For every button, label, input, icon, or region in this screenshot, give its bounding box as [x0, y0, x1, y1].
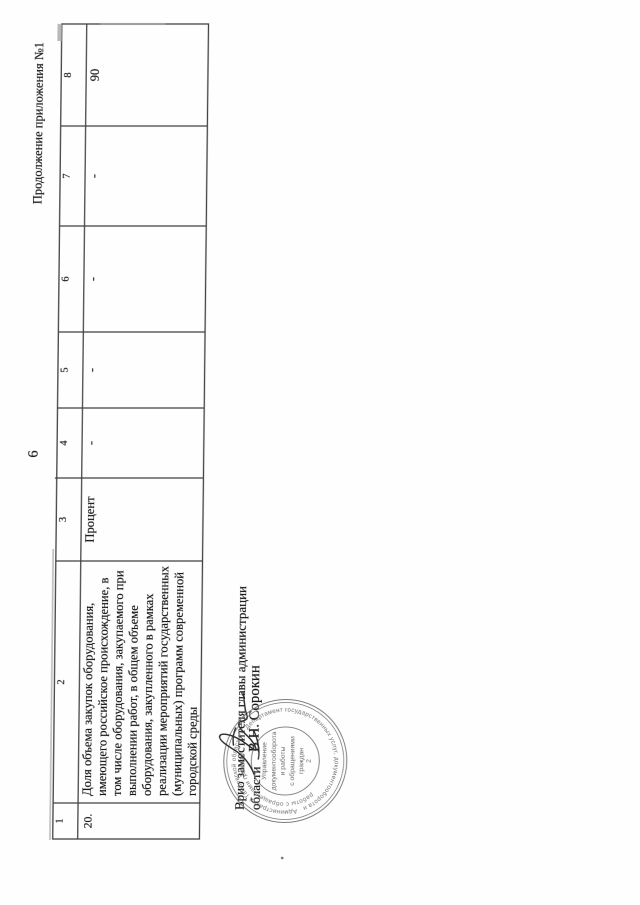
svg-text:с обращениями: с обращениями: [288, 736, 297, 786]
svg-text:документооборота: документооборота: [269, 731, 278, 790]
svg-text:2: 2: [306, 759, 313, 763]
svg-text:и работы: и работы: [279, 747, 287, 776]
svg-text:граждан: граждан: [298, 748, 305, 774]
svg-text:Управление: Управление: [261, 742, 268, 780]
